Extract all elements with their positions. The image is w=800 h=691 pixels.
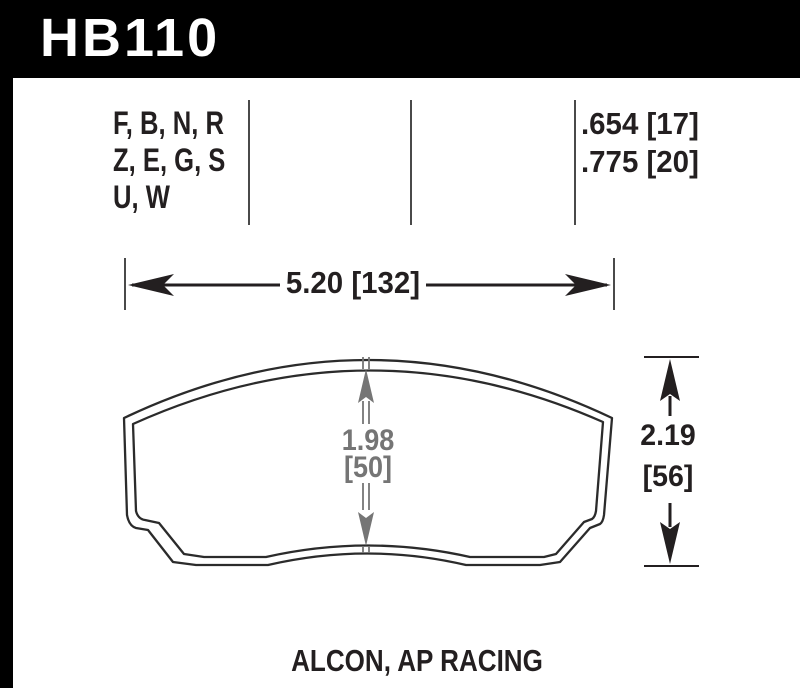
arrow-right-icon	[565, 274, 611, 296]
arrow-left-icon	[128, 274, 174, 296]
compound-line-1: F, B, N, R	[113, 105, 225, 142]
center-height-mm: [50]	[323, 451, 413, 485]
pad-drawing	[0, 0, 800, 691]
overall-height-value: 2.19	[621, 419, 716, 453]
width-dimension-label: 5.20 [132]	[258, 265, 448, 301]
compound-line-3: U, W	[113, 179, 225, 216]
thickness-line-1: .654 [17]	[581, 105, 699, 143]
overall-height-mm: [56]	[621, 460, 716, 494]
pad-thickness-values: .654 [17] .775 [20]	[581, 105, 699, 181]
arrow-up-gray-icon	[358, 369, 374, 403]
column-divider	[574, 100, 576, 225]
arrow-down-icon	[660, 522, 680, 564]
header-bar: HB110	[0, 0, 800, 78]
compound-line-2: Z, E, G, S	[113, 142, 225, 179]
thickness-line-2: .775 [20]	[581, 143, 699, 181]
catalog-page: HB110 F, B, N, R Z, E, G, S U, W .654 [1…	[0, 0, 800, 691]
column-divider	[248, 100, 250, 225]
applications-text: ALCON, AP RACING	[207, 643, 627, 679]
compound-codes: F, B, N, R Z, E, G, S U, W	[113, 105, 225, 216]
arrow-down-gray-icon	[358, 512, 374, 546]
column-divider	[410, 100, 412, 225]
arrow-up-icon	[660, 359, 680, 401]
left-border-bar	[0, 0, 13, 688]
part-number: HB110	[40, 8, 220, 68]
